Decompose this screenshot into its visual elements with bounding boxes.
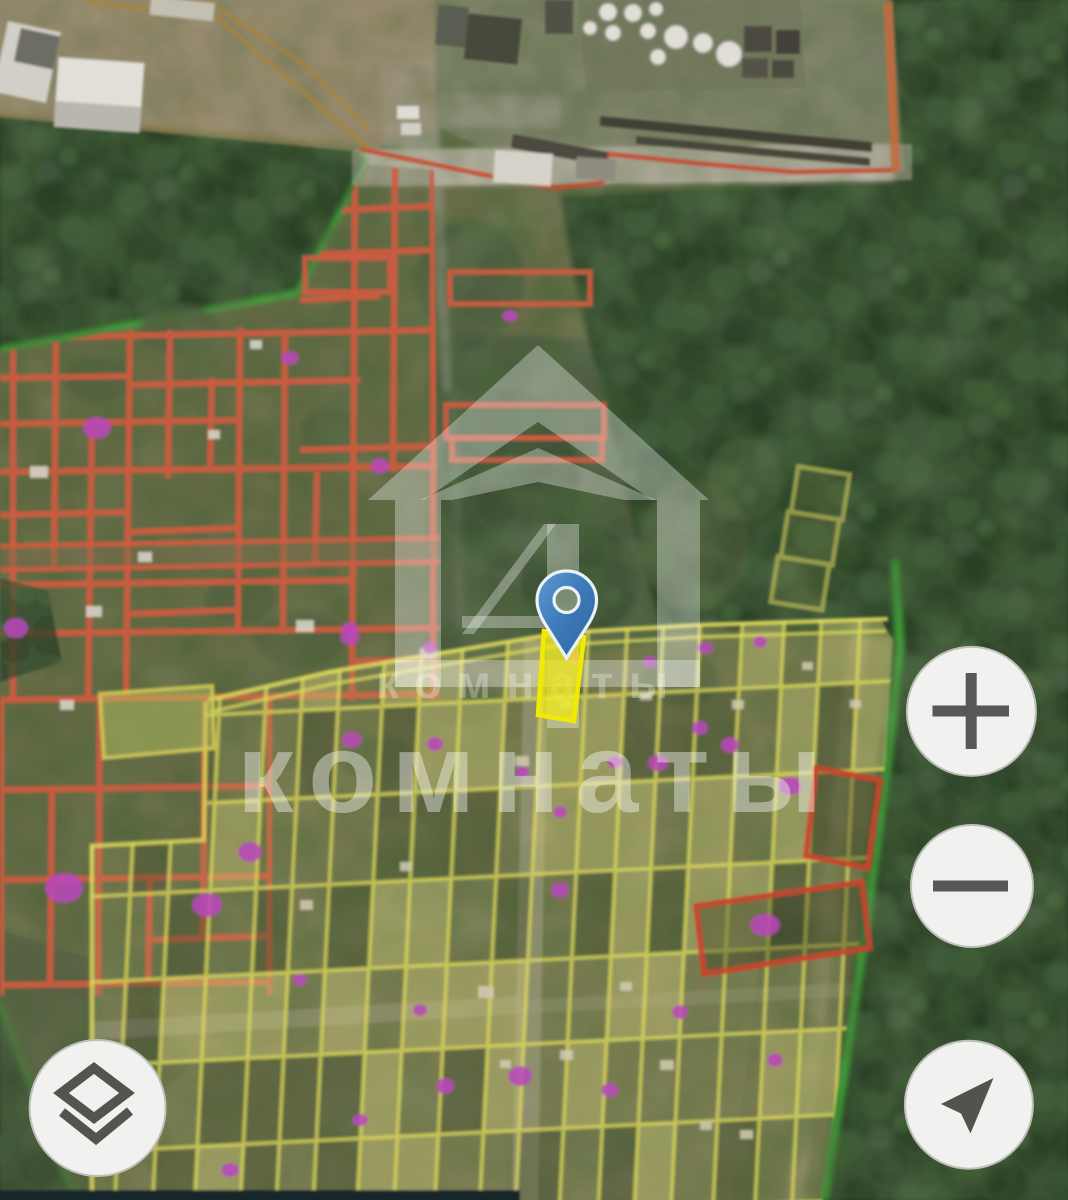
svg-text:комнаты: комнаты bbox=[376, 656, 684, 708]
svg-text:комнаты: комнаты bbox=[237, 710, 838, 836]
